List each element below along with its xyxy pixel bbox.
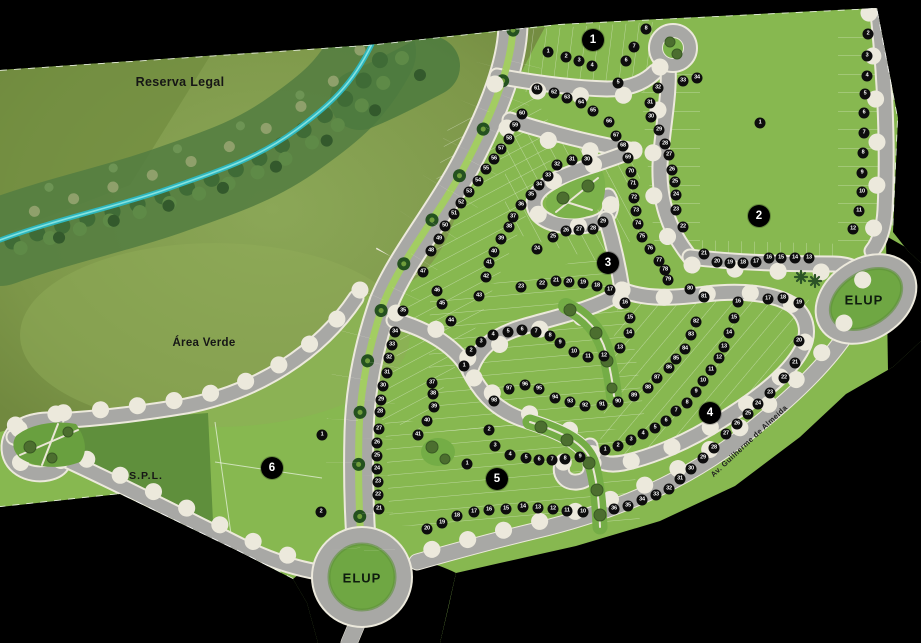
lot-marker: 56 — [489, 154, 500, 165]
lot-marker: 58 — [504, 134, 515, 145]
lot-marker: 18 — [452, 511, 463, 522]
lot-marker: 83 — [686, 330, 697, 341]
lot-marker: 31 — [645, 98, 656, 109]
lot-marker: 44 — [446, 316, 457, 327]
lot-marker: 82 — [691, 317, 702, 328]
lot-marker: 32 — [664, 484, 675, 495]
lot-marker: 8 — [858, 148, 869, 159]
lot-marker: 36 — [609, 504, 620, 515]
lot-marker: 18 — [592, 281, 603, 292]
lot-marker: 64 — [576, 98, 587, 109]
lot-marker: 59 — [510, 121, 521, 132]
lot-marker: 9 — [575, 452, 586, 463]
lot-marker: 3 — [476, 337, 487, 348]
lot-marker: 10 — [569, 347, 580, 358]
lot-marker: 62 — [549, 88, 560, 99]
lot-marker: 71 — [628, 179, 639, 190]
lot-marker: 34 — [534, 180, 545, 191]
block-number-badge: 4 — [699, 402, 721, 424]
lot-marker: 22 — [373, 490, 384, 501]
lot-marker: 5 — [650, 423, 661, 434]
lot-marker: 8 — [641, 24, 652, 35]
lot-marker: 16 — [764, 253, 775, 264]
lot-marker: 25 — [372, 451, 383, 462]
lot-marker: 11 — [583, 352, 594, 363]
lot-marker: 74 — [633, 219, 644, 230]
lot-marker: 45 — [437, 299, 448, 310]
lot-marker: 34 — [390, 327, 401, 338]
lot-marker: 37 — [427, 378, 438, 389]
lot-marker: 26 — [667, 165, 678, 176]
lot-marker: 6 — [859, 108, 870, 119]
lot-marker: 2 — [561, 52, 572, 63]
lot-marker: 15 — [729, 313, 740, 324]
area-verde-label: Área Verde — [172, 337, 235, 349]
lot-marker: 5 — [503, 327, 514, 338]
lot-marker: 6 — [621, 56, 632, 67]
block-number-badge: 1 — [582, 29, 604, 51]
lot-marker: 88 — [643, 383, 654, 394]
lot-marker: 15 — [776, 253, 787, 264]
lot-marker: 40 — [422, 416, 433, 427]
lot-marker: 11 — [854, 206, 865, 217]
lot-marker: 24 — [372, 464, 383, 475]
spl-label: S.P.L. — [129, 470, 163, 482]
lot-marker: 22 — [678, 222, 689, 233]
lot-marker: 34 — [692, 73, 703, 84]
lot-marker: 12 — [599, 351, 610, 362]
lot-marker: 7 — [547, 455, 558, 466]
lot-marker: 27 — [374, 424, 385, 435]
lot-marker: 33 — [543, 171, 554, 182]
lot-marker: 4 — [638, 429, 649, 440]
lot-marker: 91 — [597, 400, 608, 411]
block-number-badge: 3 — [597, 252, 619, 274]
lot-marker: 47 — [418, 267, 429, 278]
lot-marker: 16 — [620, 298, 631, 309]
block-number-badge: 6 — [261, 457, 283, 479]
lot-marker: 29 — [654, 125, 665, 136]
lot-marker: 2 — [484, 425, 495, 436]
lot-marker: 27 — [574, 225, 585, 236]
lot-marker: 15 — [625, 313, 636, 324]
lot-marker: 24 — [753, 399, 764, 410]
lot-marker: 25 — [670, 177, 681, 188]
lot-marker: 27 — [664, 150, 675, 161]
lot-marker: 30 — [378, 381, 389, 392]
lot-marker: 27 — [721, 429, 732, 440]
lot-marker: 19 — [437, 518, 448, 529]
lot-marker: 55 — [481, 164, 492, 175]
lot-marker: 17 — [469, 507, 480, 518]
lot-marker: 17 — [751, 257, 762, 268]
lot-marker: 6 — [534, 455, 545, 466]
lot-marker: 34 — [637, 495, 648, 506]
lot-marker: 41 — [484, 258, 495, 269]
lot-marker: 14 — [724, 328, 735, 339]
lot-marker: 3 — [574, 56, 585, 67]
lot-marker: 26 — [732, 419, 743, 430]
lot-marker: 2 — [863, 29, 874, 40]
lot-marker: 1 — [755, 118, 766, 129]
lot-marker: 22 — [537, 279, 548, 290]
lot-marker: 76 — [645, 244, 656, 255]
lot-marker: 25 — [743, 409, 754, 420]
lot-marker: 14 — [518, 502, 529, 513]
lot-marker: 19 — [725, 258, 736, 269]
lot-marker: 42 — [481, 272, 492, 283]
lot-marker: 70 — [626, 167, 637, 178]
lot-marker: 21 — [551, 276, 562, 287]
lot-marker: 24 — [671, 190, 682, 201]
lot-marker: 21 — [374, 504, 385, 515]
lot-marker: 12 — [848, 224, 859, 235]
lot-marker: 13 — [533, 503, 544, 514]
elup-right-label: ELUP — [845, 293, 884, 308]
lot-marker: 23 — [671, 205, 682, 216]
lot-marker: 1 — [317, 430, 328, 441]
reserva-legal-label: Reserva Legal — [136, 75, 225, 89]
lot-marker: 28 — [660, 139, 671, 150]
lot-marker: 12 — [714, 353, 725, 364]
lot-marker: 13 — [719, 342, 730, 353]
lot-marker: 7 — [629, 42, 640, 53]
lot-marker: 23 — [765, 388, 776, 399]
lot-marker: 10 — [698, 376, 709, 387]
lot-marker: 1 — [462, 459, 473, 470]
lot-marker: 19 — [578, 278, 589, 289]
lot-marker: 7 — [531, 327, 542, 338]
lot-marker: 14 — [790, 253, 801, 264]
lot-marker: 32 — [384, 353, 395, 364]
lot-marker: 67 — [611, 131, 622, 142]
lot-marker: 4 — [505, 450, 516, 461]
lot-marker: 92 — [580, 401, 591, 412]
lot-marker: 21 — [790, 358, 801, 369]
lot-marker: 33 — [651, 490, 662, 501]
lot-marker: 7 — [859, 128, 870, 139]
lot-marker: 5 — [860, 89, 871, 100]
lot-marker: 24 — [532, 244, 543, 255]
lot-marker: 31 — [675, 474, 686, 485]
lot-marker: 57 — [496, 144, 507, 155]
lot-marker: 97 — [504, 384, 515, 395]
lot-marker: 38 — [428, 389, 439, 400]
lot-marker: 2 — [316, 507, 327, 518]
lot-marker: 28 — [588, 224, 599, 235]
lot-marker: 63 — [562, 93, 573, 104]
lot-marker: 22 — [779, 373, 790, 384]
lot-marker: 20 — [422, 524, 433, 535]
lot-marker: 72 — [629, 193, 640, 204]
block-number-badge: 5 — [486, 468, 508, 490]
lot-marker: 39 — [429, 402, 440, 413]
lot-marker: 9 — [857, 168, 868, 179]
lot-marker: 4 — [587, 61, 598, 72]
lot-marker: 11 — [562, 506, 573, 517]
lot-marker: 33 — [387, 340, 398, 351]
lot-marker: 17 — [763, 294, 774, 305]
lot-marker: 20 — [564, 277, 575, 288]
lot-marker: 43 — [474, 291, 485, 302]
lot-marker: 73 — [631, 206, 642, 217]
lot-marker: 66 — [604, 117, 615, 128]
lot-marker: 8 — [682, 398, 693, 409]
lot-marker: 18 — [738, 258, 749, 269]
lot-marker: 30 — [646, 112, 657, 123]
lot-marker: 29 — [698, 453, 709, 464]
lot-marker: 30 — [686, 464, 697, 475]
lot-marker: 93 — [565, 397, 576, 408]
lot-marker: 3 — [626, 435, 637, 446]
lot-marker: 13 — [615, 343, 626, 354]
lot-marker: 84 — [680, 344, 691, 355]
lot-marker: 87 — [652, 373, 663, 384]
lot-marker: 3 — [490, 441, 501, 452]
lot-marker: 4 — [488, 330, 499, 341]
lot-marker: 35 — [526, 190, 537, 201]
lot-marker: 10 — [857, 187, 868, 198]
lot-marker: 19 — [794, 298, 805, 309]
lot-marker: 18 — [778, 293, 789, 304]
lot-marker: 48 — [426, 246, 437, 257]
lot-marker: 12 — [548, 504, 559, 515]
lot-marker: 25 — [548, 232, 559, 243]
lot-marker: 28 — [375, 407, 386, 418]
lot-marker: 96 — [520, 380, 531, 391]
lot-marker: 1 — [459, 361, 470, 372]
lot-marker: 54 — [473, 176, 484, 187]
lot-marker: 8 — [545, 331, 556, 342]
lot-marker: 7 — [671, 406, 682, 417]
lot-marker: 16 — [484, 505, 495, 516]
lot-marker: 35 — [398, 306, 409, 317]
lot-marker: 75 — [637, 232, 648, 243]
lot-marker: 5 — [613, 78, 624, 89]
lot-marker: 52 — [456, 198, 467, 209]
lot-marker: 65 — [588, 106, 599, 117]
lot-marker: 2 — [466, 346, 477, 357]
lot-marker: 60 — [517, 109, 528, 120]
lot-marker: 32 — [653, 83, 664, 94]
lot-marker: 80 — [685, 284, 696, 295]
lot-marker: 10 — [578, 507, 589, 518]
lot-marker: 46 — [432, 286, 443, 297]
lot-marker: 98 — [489, 396, 500, 407]
lot-marker: 31 — [567, 155, 578, 166]
lot-marker: 30 — [582, 155, 593, 166]
lot-marker: 15 — [501, 504, 512, 515]
lot-marker: 79 — [663, 275, 674, 286]
lot-marker: 21 — [699, 249, 710, 260]
lot-marker: 41 — [413, 430, 424, 441]
map-artwork — [0, 0, 921, 643]
lot-marker: 95 — [534, 384, 545, 395]
lot-marker: 9 — [691, 387, 702, 398]
lot-marker: 26 — [561, 226, 572, 237]
lot-marker: 39 — [496, 234, 507, 245]
lot-marker: 40 — [489, 247, 500, 258]
lot-marker: 23 — [373, 477, 384, 488]
lot-marker: 20 — [794, 336, 805, 347]
lot-marker: 38 — [504, 222, 515, 233]
lot-marker: 5 — [521, 453, 532, 464]
lot-marker: 11 — [706, 365, 717, 376]
lot-marker: 14 — [624, 328, 635, 339]
lot-marker: 17 — [605, 285, 616, 296]
lot-marker: 29 — [598, 217, 609, 228]
lot-marker: 9 — [555, 338, 566, 349]
master-plan-map: Reserva Legal Área Verde S.P.L. ELUP ELU… — [0, 0, 921, 643]
lot-marker: 1 — [600, 445, 611, 456]
lot-marker: 3 — [862, 51, 873, 62]
lot-marker: 81 — [699, 292, 710, 303]
lot-marker: 2 — [613, 441, 624, 452]
lot-marker: 89 — [629, 391, 640, 402]
lot-marker: 31 — [382, 368, 393, 379]
lot-marker: 61 — [532, 84, 543, 95]
lot-marker: 33 — [678, 76, 689, 87]
lot-marker: 69 — [623, 153, 634, 164]
elup-bottom-label: ELUP — [343, 571, 382, 586]
lot-marker: 16 — [733, 297, 744, 308]
block-number-badge: 2 — [748, 205, 770, 227]
lot-marker: 6 — [661, 416, 672, 427]
lot-marker: 13 — [804, 253, 815, 264]
lot-marker: 29 — [376, 395, 387, 406]
lot-marker: 36 — [516, 200, 527, 211]
lot-marker: 32 — [552, 160, 563, 171]
lot-marker: 90 — [613, 397, 624, 408]
lot-marker: 6 — [517, 325, 528, 336]
lot-marker: 28 — [709, 443, 720, 454]
lot-marker: 50 — [440, 221, 451, 232]
lot-marker: 68 — [618, 141, 629, 152]
lot-marker: 23 — [516, 282, 527, 293]
lot-marker: 26 — [372, 438, 383, 449]
lot-marker: 53 — [464, 187, 475, 198]
lot-marker: 8 — [560, 454, 571, 465]
lot-marker: 35 — [623, 501, 634, 512]
lot-marker: 49 — [434, 234, 445, 245]
lot-marker: 4 — [862, 71, 873, 82]
lot-marker: 20 — [712, 257, 723, 268]
lot-marker: 94 — [550, 393, 561, 404]
lot-marker: 51 — [449, 209, 460, 220]
lot-marker: 86 — [664, 363, 675, 374]
lot-marker: 1 — [543, 47, 554, 58]
